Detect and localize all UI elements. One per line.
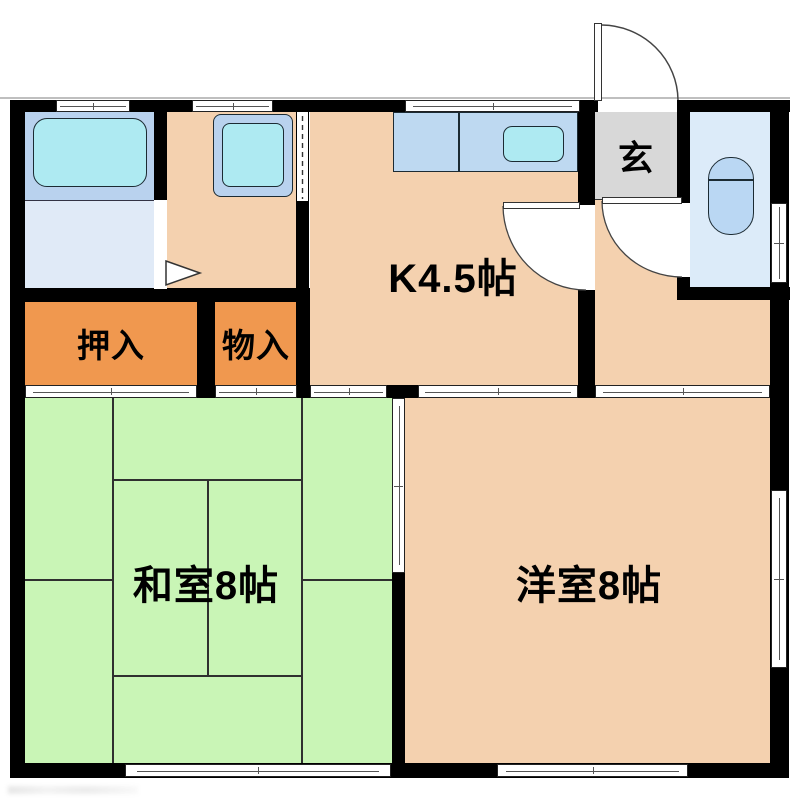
youshitsu-label: 洋室8帖	[516, 553, 662, 611]
entrance-door-arc	[602, 25, 678, 100]
genkan-label: 玄	[618, 131, 654, 182]
entrance-door-leaf	[594, 23, 602, 101]
toilet-door-swing-fill	[602, 201, 682, 277]
washitsu-label: 和室8帖	[133, 553, 279, 611]
floor-plan: K4.5帖 玄 押入 物入 和室8帖 洋室8帖	[0, 0, 800, 800]
toilet-door-leaf	[602, 197, 682, 204]
door-swing-overlay	[0, 0, 800, 800]
kitchen-door-leaf	[503, 202, 580, 209]
oshiire-label: 押入	[77, 319, 145, 367]
kitchen-label: K4.5帖	[388, 246, 518, 304]
door-direction-triangle-icon	[166, 261, 200, 285]
monoire-label: 物入	[222, 319, 290, 367]
